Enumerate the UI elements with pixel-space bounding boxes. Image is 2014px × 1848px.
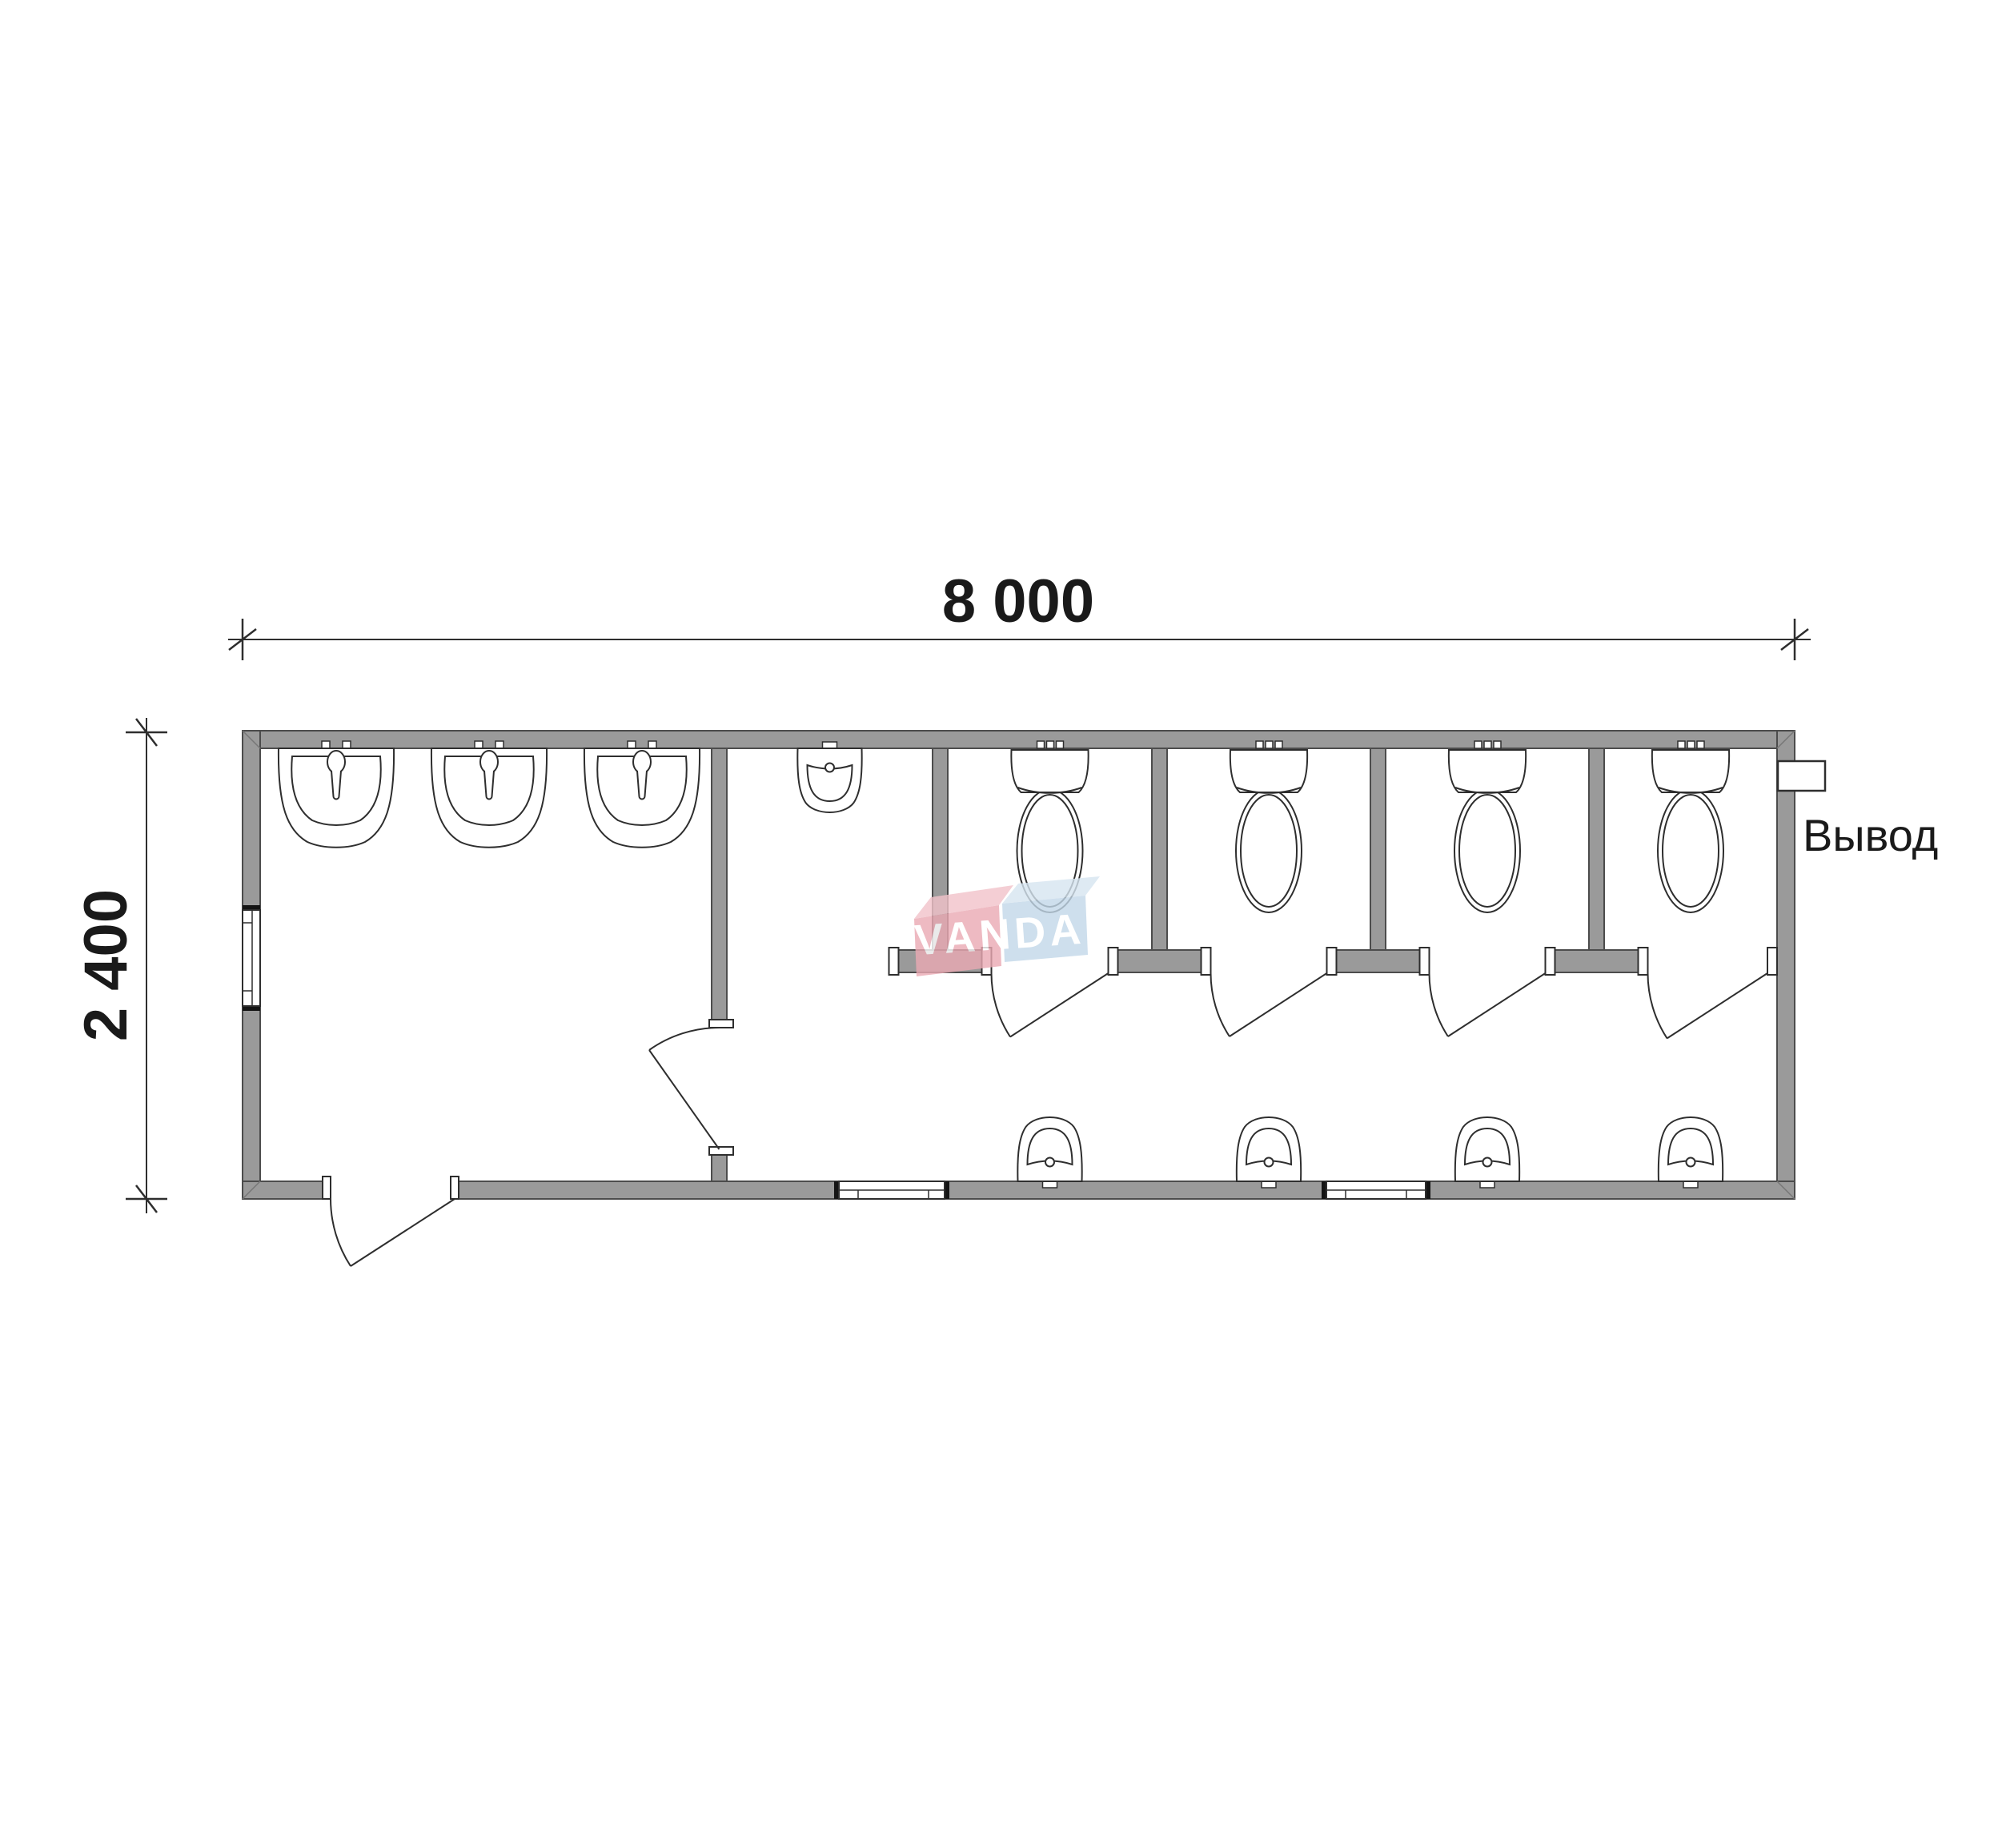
washbasin-3: [584, 741, 700, 848]
washroom-partition-wall: [712, 748, 727, 1181]
left-wall-window: [243, 905, 260, 1011]
urinal-wall-top: [797, 742, 861, 812]
bottom-wall-window-2: [1322, 1181, 1430, 1199]
urinal-4: [1659, 1117, 1723, 1188]
stall-front-2: [1118, 950, 1202, 972]
entrance-door: [331, 1199, 455, 1266]
stall-door-1: [992, 973, 1109, 1037]
floor-plan-sheet: 8 000 2 400: [0, 0, 2014, 1848]
urinal-3: [1455, 1117, 1519, 1188]
outlet-pipe: [1778, 761, 1825, 791]
washbasin-2: [431, 741, 547, 848]
stall-front-3: [1337, 950, 1420, 972]
stall-partition-3: [1370, 748, 1386, 950]
outlet-label: Вывод: [1803, 810, 1938, 860]
bottom-wall-window-1: [834, 1181, 949, 1199]
stall-partition-2: [1152, 748, 1167, 950]
urinal-2: [1237, 1117, 1301, 1188]
toilet-3: [1449, 741, 1526, 912]
stall-front-4: [1555, 950, 1639, 972]
stall-door-2: [1211, 973, 1327, 1036]
washroom-door: [649, 1028, 720, 1149]
dimension-label-height: 2 400: [72, 889, 140, 1041]
washbasin-1: [279, 741, 394, 848]
urinal-1: [1017, 1117, 1081, 1188]
washbasins: [279, 741, 700, 848]
dimension-label-width: 8 000: [942, 567, 1094, 635]
toilet-2: [1230, 741, 1307, 912]
stall-door-3: [1430, 973, 1546, 1036]
bottom-urinals: [1017, 1117, 1723, 1188]
toilet-4: [1652, 741, 1729, 912]
stall-door-4: [1648, 973, 1768, 1038]
stall-partition-4: [1589, 748, 1604, 950]
